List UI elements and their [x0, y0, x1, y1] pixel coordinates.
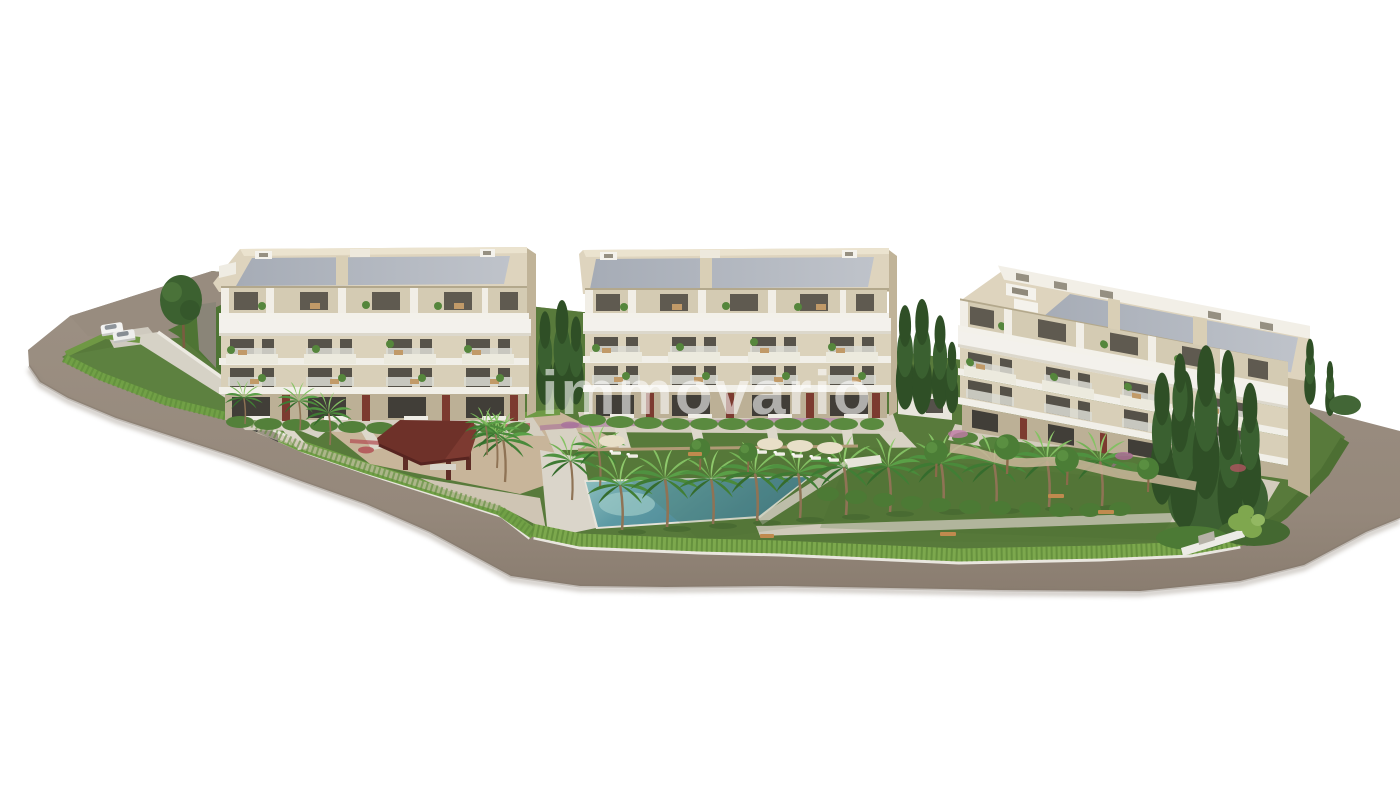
svg-text:immovario: immovario	[541, 359, 873, 428]
